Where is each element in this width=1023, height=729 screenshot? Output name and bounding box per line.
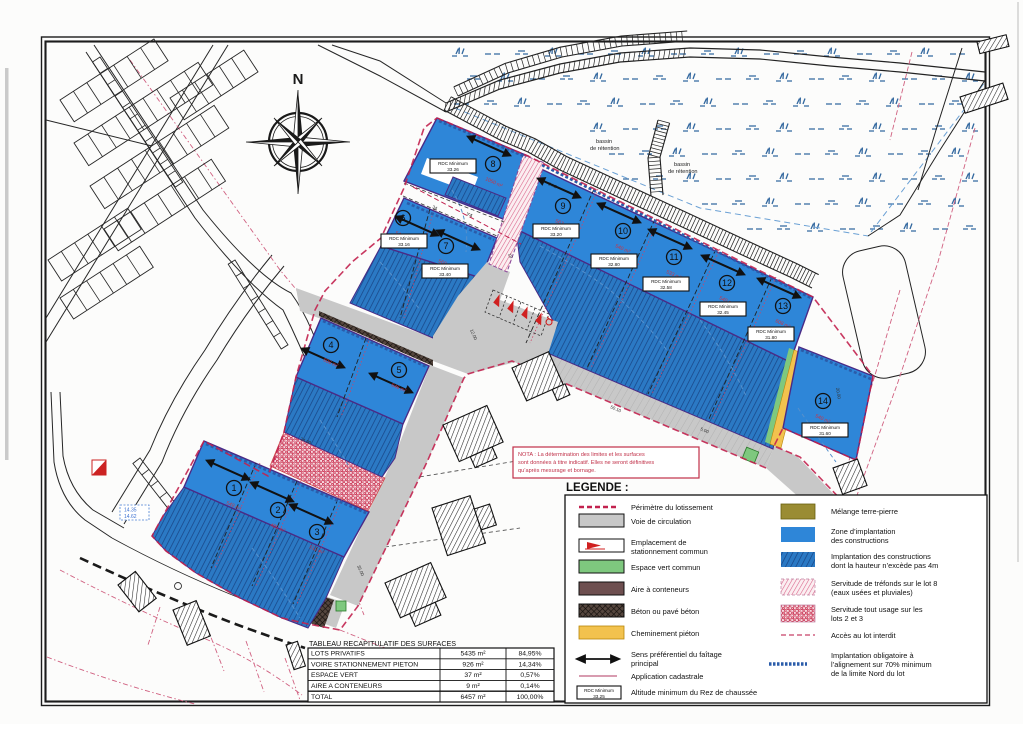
svg-text:5: 5 bbox=[396, 365, 401, 375]
svg-text:10: 10 bbox=[618, 226, 628, 236]
svg-text:TABLEAU RECAPITULATIF DES SURF: TABLEAU RECAPITULATIF DES SURFACES bbox=[309, 639, 456, 648]
svg-text:Aire à conteneurs: Aire à conteneurs bbox=[631, 585, 689, 594]
svg-text:Périmètre du lotissement: Périmètre du lotissement bbox=[631, 503, 713, 512]
svg-text:stationnement commun: stationnement commun bbox=[631, 547, 708, 556]
svg-text:LOTS PRIVATIFS: LOTS PRIVATIFS bbox=[311, 651, 365, 658]
svg-text:Application cadastrale: Application cadastrale bbox=[631, 672, 703, 681]
svg-text:RDC Minimum: RDC Minimum bbox=[651, 279, 681, 284]
svg-text:33.40: 33.40 bbox=[439, 272, 451, 277]
svg-text:AIRE A CONTENEURS: AIRE A CONTENEURS bbox=[311, 683, 382, 690]
svg-text:LEGENDE :: LEGENDE : bbox=[566, 482, 629, 494]
svg-text:14.62: 14.62 bbox=[124, 514, 137, 520]
svg-text:bassin: bassin bbox=[674, 162, 690, 168]
svg-text:31.80: 31.80 bbox=[765, 335, 777, 340]
svg-text:VOIRE STATIONNEMENT PIETON: VOIRE STATIONNEMENT PIETON bbox=[311, 661, 418, 668]
svg-text:des constructions: des constructions bbox=[831, 536, 889, 545]
svg-text:31.60: 31.60 bbox=[819, 431, 831, 436]
svg-text:12: 12 bbox=[722, 278, 732, 288]
svg-text:RDC Minimum: RDC Minimum bbox=[584, 688, 614, 693]
svg-text:6457 m²: 6457 m² bbox=[461, 694, 487, 701]
svg-text:5435 m²: 5435 m² bbox=[461, 651, 487, 658]
svg-text:33.16: 33.16 bbox=[398, 242, 410, 247]
svg-text:32.80: 32.80 bbox=[608, 262, 620, 267]
svg-text:TOTAL: TOTAL bbox=[311, 694, 332, 701]
svg-text:9 m²: 9 m² bbox=[466, 683, 480, 690]
svg-text:84,95%: 84,95% bbox=[518, 651, 541, 658]
svg-text:N: N bbox=[293, 71, 304, 88]
svg-text:14.35: 14.35 bbox=[124, 508, 137, 514]
svg-text:RDC Minimum: RDC Minimum bbox=[756, 329, 786, 334]
svg-text:Béton ou pavé béton: Béton ou pavé béton bbox=[631, 607, 699, 616]
svg-text:Servitude tout usage sur les: Servitude tout usage sur les bbox=[831, 605, 923, 614]
svg-text:de la limite Nord du lot: de la limite Nord du lot bbox=[831, 669, 905, 678]
svg-text:de rétention: de rétention bbox=[668, 169, 698, 175]
svg-text:NOTA : La détermination des li: NOTA : La détermination des limites et l… bbox=[518, 452, 645, 458]
svg-text:(eaux usées et pluviales): (eaux usées et pluviales) bbox=[831, 588, 913, 597]
svg-text:Implantation obligatoire à: Implantation obligatoire à bbox=[831, 651, 914, 660]
svg-text:9: 9 bbox=[560, 201, 565, 211]
svg-text:Sens préférentiel du faîtage: Sens préférentiel du faîtage bbox=[631, 650, 722, 659]
svg-text:dont la hauteur n’excède pas 4: dont la hauteur n’excède pas 4m bbox=[831, 561, 938, 570]
svg-text:RDC Minimum: RDC Minimum bbox=[810, 425, 840, 430]
svg-text:RDC Minimum: RDC Minimum bbox=[708, 304, 738, 309]
svg-text:ESPACE VERT: ESPACE VERT bbox=[311, 672, 358, 679]
svg-text:1: 1 bbox=[231, 483, 236, 493]
svg-text:11: 11 bbox=[669, 252, 678, 262]
svg-text:32.45: 32.45 bbox=[717, 310, 729, 315]
svg-text:Emplacement de: Emplacement de bbox=[631, 538, 686, 547]
svg-text:Mélange terre-pierre: Mélange terre-pierre bbox=[831, 507, 898, 516]
svg-text:principal: principal bbox=[631, 659, 659, 668]
svg-text:Implantation des constructions: Implantation des constructions bbox=[831, 552, 931, 561]
svg-text:8: 8 bbox=[490, 159, 495, 169]
svg-text:2: 2 bbox=[275, 505, 280, 515]
svg-text:Accès au lot interdit: Accès au lot interdit bbox=[831, 631, 896, 640]
svg-text:RDC Minimum: RDC Minimum bbox=[541, 226, 571, 231]
svg-text:Espace vert commun: Espace vert commun bbox=[631, 563, 700, 572]
svg-text:7: 7 bbox=[443, 241, 448, 251]
svg-text:32.58: 32.58 bbox=[660, 285, 672, 290]
svg-text:0,57%: 0,57% bbox=[520, 672, 539, 679]
svg-text:RDC Minimum: RDC Minimum bbox=[430, 266, 460, 271]
svg-text:3: 3 bbox=[314, 527, 319, 537]
svg-text:14: 14 bbox=[818, 396, 828, 406]
svg-text:Altitude minimum du Rez de cha: Altitude minimum du Rez de chaussée bbox=[631, 688, 757, 697]
svg-text:0,14%: 0,14% bbox=[520, 683, 539, 690]
svg-text:RDC Minimum: RDC Minimum bbox=[438, 161, 468, 166]
svg-text:4: 4 bbox=[328, 340, 333, 350]
svg-text:qu’après mesurage et bornage.: qu’après mesurage et bornage. bbox=[518, 468, 596, 474]
svg-text:100,00%: 100,00% bbox=[517, 694, 544, 701]
svg-text:14,34%: 14,34% bbox=[518, 661, 541, 668]
svg-text:926 m²: 926 m² bbox=[462, 661, 484, 668]
svg-text:33.25: 33.25 bbox=[593, 694, 605, 699]
svg-text:RDC Minimum: RDC Minimum bbox=[599, 256, 629, 261]
svg-text:33.20: 33.20 bbox=[550, 232, 562, 237]
svg-text:lots 2 et 3: lots 2 et 3 bbox=[831, 614, 863, 623]
svg-text:Zone d’implantation: Zone d’implantation bbox=[831, 527, 896, 536]
svg-text:Voie de circulation: Voie de circulation bbox=[631, 517, 691, 526]
svg-text:37 m²: 37 m² bbox=[464, 672, 482, 679]
svg-text:de rétention: de rétention bbox=[590, 146, 620, 152]
svg-text:RDC Minimum: RDC Minimum bbox=[389, 236, 419, 241]
svg-text:sont données à titre indicatif: sont données à titre indicatif. Elles ne… bbox=[518, 460, 654, 466]
svg-text:33.26: 33.26 bbox=[447, 167, 459, 172]
svg-text:13: 13 bbox=[778, 301, 788, 311]
svg-text:bassin: bassin bbox=[596, 139, 612, 145]
svg-text:Servitude de tréfonds sur le l: Servitude de tréfonds sur le lot 8 bbox=[831, 579, 937, 588]
svg-text:Cheminement piéton: Cheminement piéton bbox=[631, 629, 699, 638]
svg-text:l’alignement sur 70% minimum: l’alignement sur 70% minimum bbox=[831, 660, 932, 669]
